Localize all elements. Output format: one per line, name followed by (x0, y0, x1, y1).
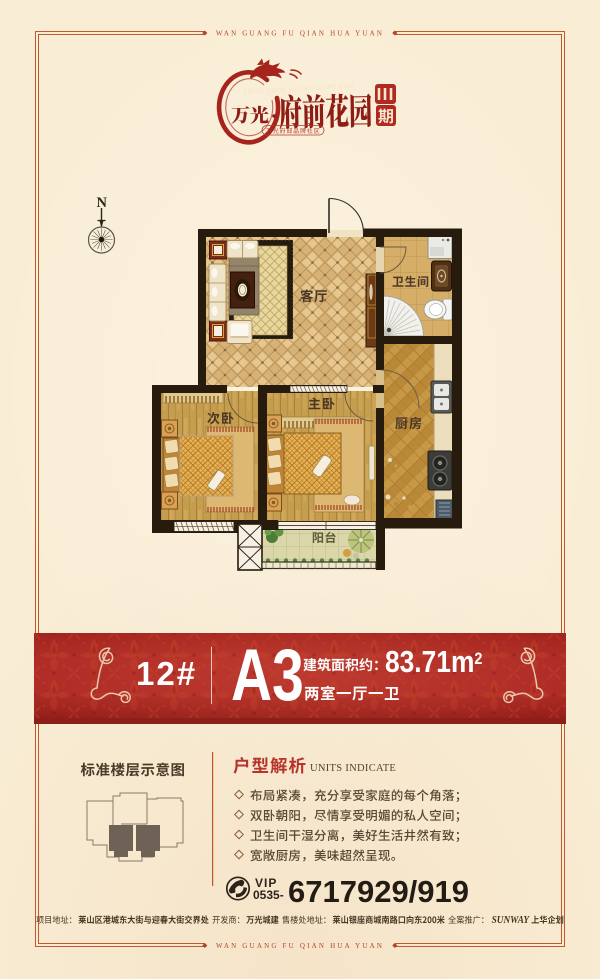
svg-text:SUNWAY: SUNWAY (492, 915, 530, 926)
